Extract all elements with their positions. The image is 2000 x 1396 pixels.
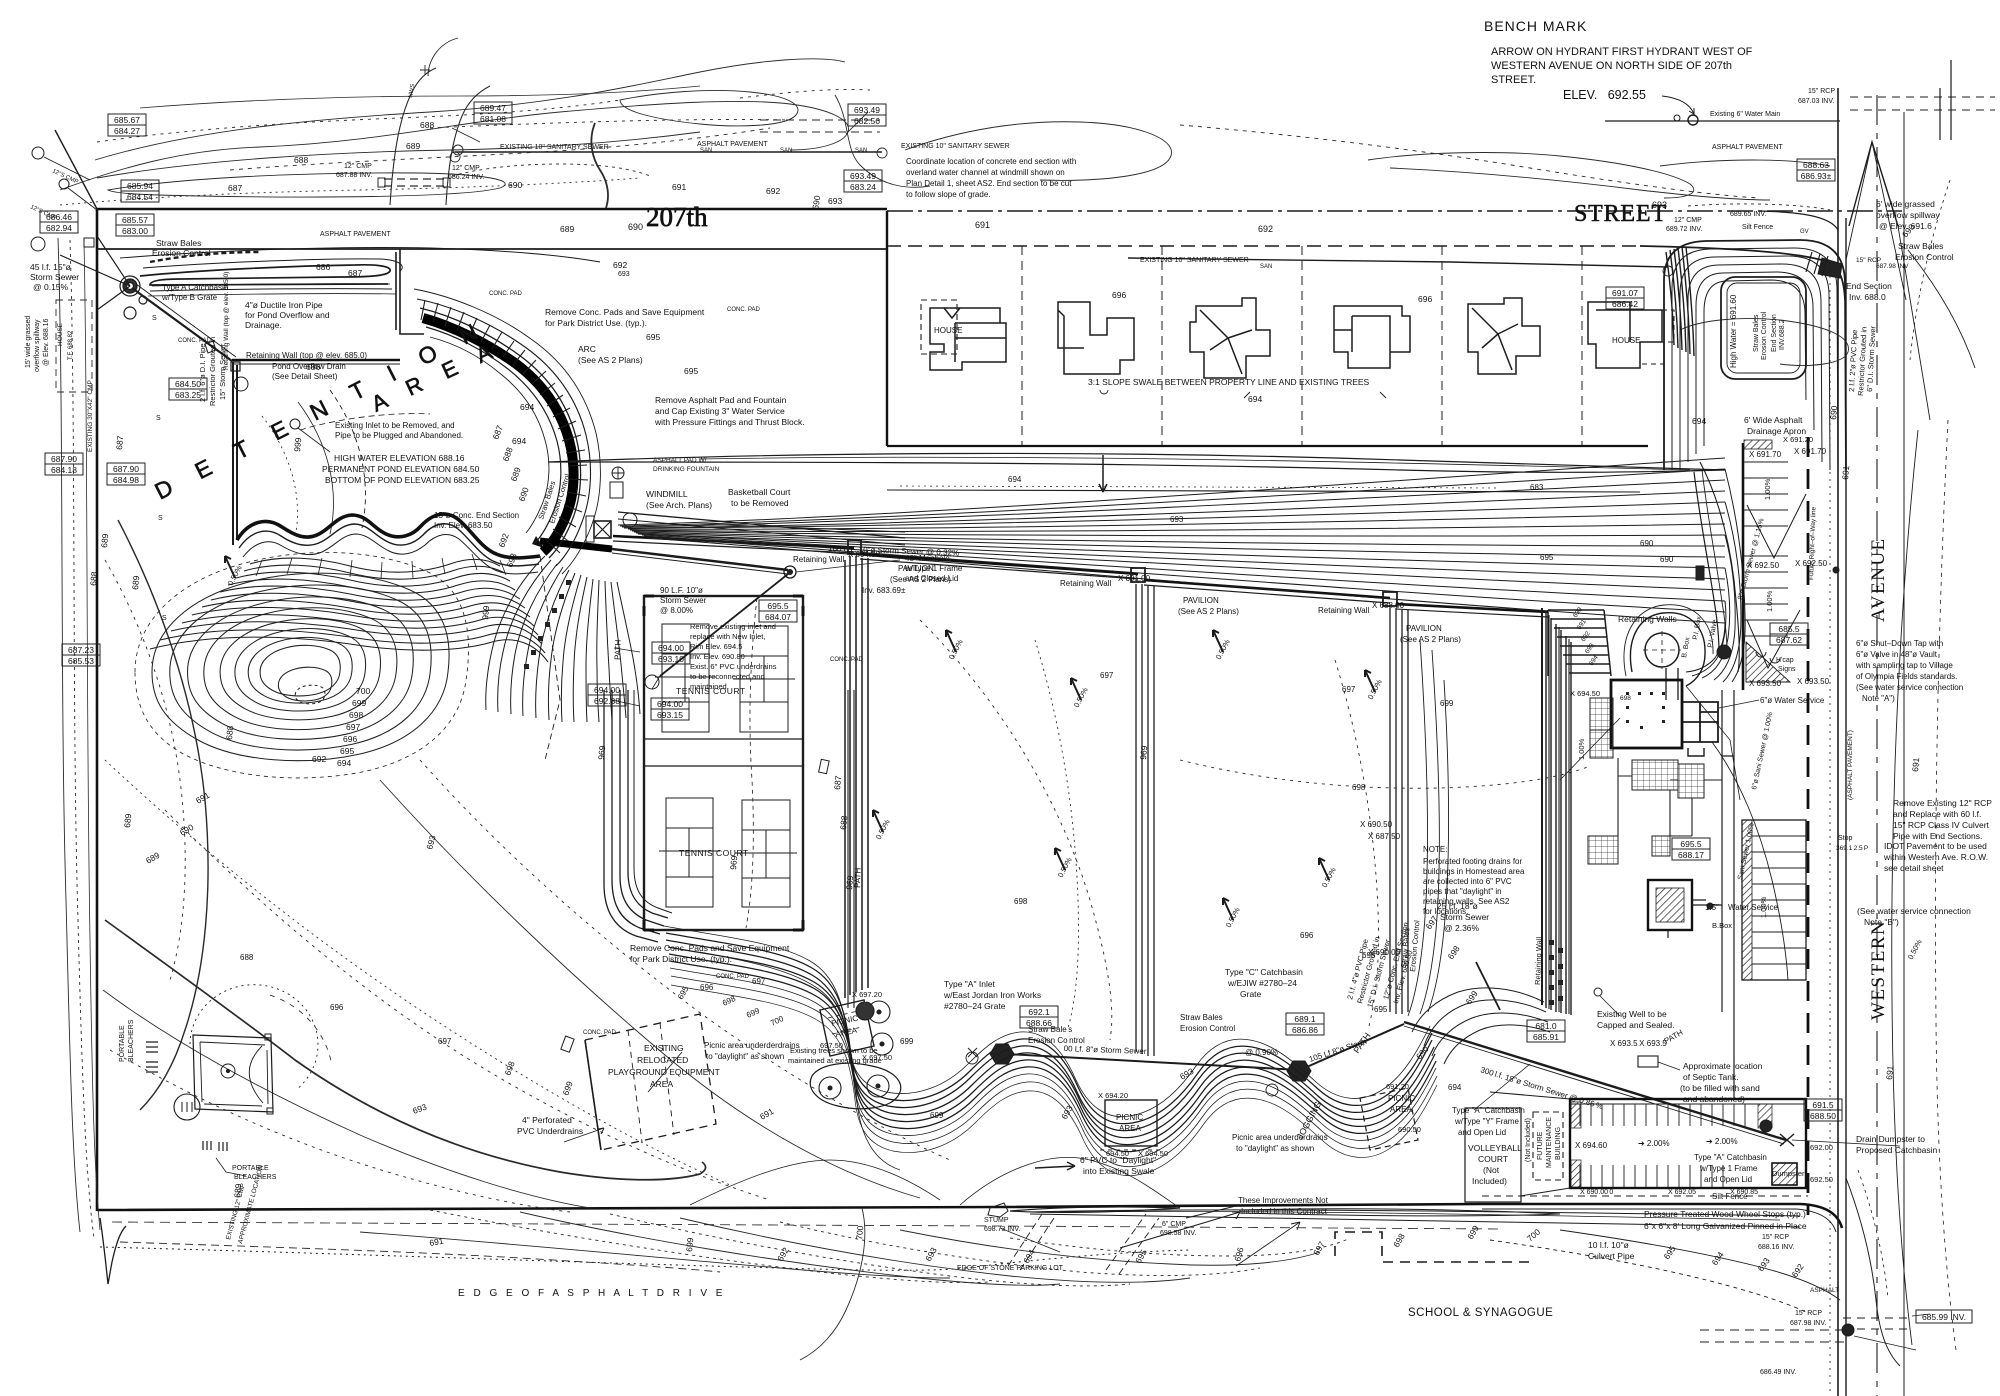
svg-text:Remove Existing 12" RCP: Remove Existing 12" RCP	[1893, 798, 1992, 808]
svg-text:PATH: PATH	[613, 639, 623, 660]
svg-text:EDGE OF STONE PARKING LOT: EDGE OF STONE PARKING LOT	[957, 1265, 1064, 1272]
svg-text:for Park District Use. (typ.).: for Park District Use. (typ.).	[545, 318, 647, 328]
svg-text:BLEACHERS: BLEACHERS	[128, 1019, 135, 1062]
svg-text:CONC. PAD: CONC. PAD	[727, 307, 761, 313]
svg-text:S: S	[156, 415, 161, 422]
svg-text:693: 693	[1584, 642, 1596, 655]
svg-text:Restrictor Grouted in: Restrictor Grouted in	[208, 337, 217, 406]
svg-text:X 688.00: X 688.00	[1372, 601, 1405, 610]
svg-text:691: 691	[1884, 1065, 1895, 1080]
svg-text:688: 688	[838, 815, 849, 830]
svg-text:ELEV. 692.55: ELEV. 692.55	[1563, 88, 1646, 102]
svg-text:694: 694	[1248, 394, 1262, 404]
svg-text:1.00%: 1.00%	[1763, 478, 1772, 500]
svg-text:to "daylight" as shown: to "daylight" as shown	[706, 1052, 784, 1061]
svg-text:w/Type 1 Frame: w/Type 1 Frame	[1699, 1164, 1758, 1173]
svg-text:Remove existing inlet and: Remove existing inlet and	[690, 622, 776, 631]
svg-text:692.00: 692.00	[1810, 1143, 1833, 1152]
svg-text:15' wide grassed: 15' wide grassed	[25, 316, 32, 368]
svg-text:NOTE:: NOTE:	[1423, 845, 1447, 854]
svg-text:695: 695	[676, 984, 691, 1001]
svg-text:697: 697	[438, 1037, 452, 1046]
svg-text:Note "A"): Note "A")	[1862, 694, 1895, 703]
svg-text:694: 694	[512, 436, 526, 446]
svg-text:700: 700	[356, 686, 370, 696]
svg-text:687.88 INV.: 687.88 INV.	[336, 172, 372, 179]
svg-text:15" RCP: 15" RCP	[1762, 1234, 1789, 1241]
svg-text:and Open Lid: and Open Lid	[1704, 1175, 1752, 1184]
svg-text:X 697.20: X 697.20	[852, 990, 882, 999]
svg-text:693: 693	[411, 1102, 428, 1116]
svg-text:RELOCATED: RELOCATED	[637, 1055, 688, 1065]
svg-text:687: 687	[114, 435, 125, 450]
svg-text:CONC. PAD: CONC. PAD	[583, 1030, 617, 1036]
svg-text:687: 687	[348, 268, 362, 278]
svg-text:X 694.20: X 694.20	[1098, 1091, 1128, 1100]
svg-text:Existing 6" Water Main: Existing 6" Water Main	[1710, 111, 1780, 118]
svg-text:(to be filled with sand: (to be filled with sand	[1680, 1083, 1760, 1093]
svg-text:687.62: 687.62	[1776, 635, 1802, 645]
svg-text:with sampling tap to Village: with sampling tap to Village	[1855, 661, 1953, 670]
svg-text:699: 699	[900, 1037, 914, 1046]
svg-text:and Cap Existing 3" Water Serv: and Cap Existing 3" Water Service	[655, 406, 785, 416]
svg-text:699: 699	[560, 1080, 574, 1097]
svg-text:6" CMP: 6" CMP	[1162, 1221, 1186, 1228]
svg-text:These Improvements Not: These Improvements Not	[1238, 1196, 1329, 1205]
svg-text:12" CMP: 12" CMP	[452, 165, 480, 172]
svg-text:2 l.f. 6"ø D.I. Pipe: 2 l.f. 6"ø D.I. Pipe	[198, 343, 207, 402]
svg-text:6"ø Shut–Down Tap with: 6"ø Shut–Down Tap with	[1856, 639, 1943, 648]
svg-text:Remove Conc. Pads and Save Equ: Remove Conc. Pads and Save Equipment	[630, 943, 790, 953]
svg-text:687.98 INV.: 687.98 INV.	[1790, 1320, 1826, 1327]
svg-text:overflow spillway: overflow spillway	[1876, 210, 1941, 220]
svg-text:697: 697	[1100, 671, 1114, 680]
svg-text:689.72 INV.: 689.72 INV.	[1666, 226, 1702, 233]
svg-text:SAN: SAN	[700, 148, 712, 154]
svg-text:Exist. 6" PVC underdrains: Exist. 6" PVC underdrains	[690, 662, 777, 671]
svg-text:696: 696	[1232, 1246, 1245, 1263]
svg-text:691.20: 691.20	[1386, 1082, 1409, 1091]
svg-text:MAINTENANCE: MAINTENANCE	[1546, 1117, 1553, 1168]
svg-text:AREA: AREA	[1390, 1105, 1412, 1114]
svg-text:for Pond Overflow and: for Pond Overflow and	[245, 310, 330, 320]
svg-text:EXISTING 10" SANITARY SEWER: EXISTING 10" SANITARY SEWER	[500, 144, 609, 151]
svg-text:X 693.50: X 693.50	[1749, 679, 1782, 688]
svg-text:691: 691	[758, 1106, 776, 1122]
svg-text:w/Type "Y" Frame: w/Type "Y" Frame	[1454, 1117, 1519, 1126]
svg-text:Pipe with End Sections.: Pipe with End Sections.	[1893, 831, 1982, 841]
svg-text:TENNIS COURT: TENNIS COURT	[676, 686, 746, 696]
svg-text:CONC. PAD: CONC. PAD	[830, 657, 864, 663]
svg-text:688: 688	[240, 953, 254, 962]
svg-text:700: 700	[769, 1014, 785, 1028]
svg-text:BOTTOM OF POND ELEVATION 683.2: BOTTOM OF POND ELEVATION 683.25	[325, 475, 480, 485]
svg-text:694.00: 694.00	[594, 685, 620, 695]
svg-text:692: 692	[1580, 630, 1592, 643]
svg-text:X 693.5 X 693.5: X 693.5 X 693.5	[1610, 1039, 1667, 1048]
svg-text:Stop: Stop	[1838, 835, 1853, 842]
svg-text:Inv. Elev. 683.50: Inv. Elev. 683.50	[434, 521, 493, 530]
svg-text:Inv. 683.69±: Inv. 683.69±	[862, 586, 906, 595]
svg-text:15" RCP Class IV Culvert: 15" RCP Class IV Culvert	[1893, 820, 1990, 830]
svg-text:1.00%: 1.00%	[1765, 590, 1774, 612]
svg-text:(See Arch. Plans): (See Arch. Plans)	[646, 500, 712, 510]
svg-text:ARROW ON HYDRANT FIRST HYDRANT: ARROW ON HYDRANT FIRST HYDRANT WEST OF	[1491, 46, 1753, 58]
svg-text:207th: 207th	[646, 202, 708, 232]
svg-text:694: 694	[1588, 654, 1600, 667]
svg-text:697: 697	[1311, 1239, 1327, 1257]
svg-text:691: 691	[975, 220, 990, 230]
svg-text:Straw Bale s: Straw Bale s	[1028, 1025, 1072, 1034]
svg-text:ASPHALT: ASPHALT	[1810, 1287, 1839, 1294]
svg-text:X 692.50: X 692.50	[1747, 561, 1780, 570]
svg-text:Water Service: Water Service	[1728, 903, 1778, 912]
svg-text:691: 691	[1910, 757, 1921, 772]
svg-text:X 691.70: X 691.70	[1749, 450, 1782, 459]
svg-text:692.50: 692.50	[1810, 1175, 1833, 1184]
svg-text:COURT: COURT	[1478, 1154, 1508, 1164]
svg-text:and abandoned): and abandoned)	[1683, 1094, 1745, 1104]
svg-text:Retaining Walls: Retaining Walls	[1618, 614, 1677, 624]
svg-text:686.49 INV.: 686.49 INV.	[1760, 1369, 1796, 1376]
svg-text:3:1 SLOPE SWALE BETWEEN PROPER: 3:1 SLOPE SWALE BETWEEN PROPERTY LINE AN…	[1088, 377, 1370, 387]
svg-text:PAVILION: PAVILION	[1406, 624, 1442, 633]
svg-text:ASPHALT PAVEMENT: ASPHALT PAVEMENT	[1712, 144, 1783, 151]
svg-text:697: 697	[346, 722, 360, 732]
svg-text:STUMP: STUMP	[984, 1217, 1009, 1224]
svg-text:690: 690	[1640, 539, 1654, 548]
svg-text:691: 691	[429, 1236, 445, 1248]
svg-text:X 691.00: X 691.00	[1118, 574, 1151, 583]
svg-text:694: 694	[1709, 1250, 1725, 1268]
svg-text:E D G E O F A S P H A L T: E D G E O F A S P H A L T D R I V E	[458, 1288, 725, 1299]
svg-text:699: 699	[1465, 1223, 1481, 1241]
svg-text:693.15: 693.15	[657, 710, 683, 720]
svg-text:689.47: 689.47	[480, 103, 506, 113]
svg-text:694: 694	[520, 402, 534, 412]
svg-text:694.00: 694.00	[658, 643, 684, 653]
svg-text:Drainage.: Drainage.	[245, 320, 282, 330]
svg-text:685.67: 685.67	[114, 115, 140, 125]
svg-text:EXISTING 30"X42" CMP: EXISTING 30"X42" CMP	[87, 380, 94, 452]
svg-text:693: 693	[424, 834, 437, 851]
svg-text:Type "C" Catchbasin: Type "C" Catchbasin	[1225, 967, 1303, 977]
svg-text:688: 688	[420, 120, 434, 130]
svg-text:693: 693	[618, 271, 630, 278]
svg-text:15" RCP: 15" RCP	[1795, 1310, 1822, 1317]
svg-text:S: S	[158, 515, 163, 522]
svg-text:688: 688	[500, 446, 514, 463]
svg-text:695: 695	[340, 746, 354, 756]
svg-text:End Section: End Section	[1846, 281, 1892, 291]
svg-text:694: 694	[1008, 475, 1022, 484]
svg-text:45 l.f. 15"ø: 45 l.f. 15"ø	[30, 262, 71, 272]
svg-text:694: 694	[337, 758, 351, 768]
svg-text:684.07: 684.07	[765, 612, 791, 622]
svg-text:(See Detail Sheet): (See Detail Sheet)	[272, 372, 338, 381]
svg-text:698: 698	[349, 710, 363, 720]
svg-text:INV.688.2: INV.688.2	[1779, 319, 1786, 350]
svg-text:699: 699	[1440, 699, 1454, 708]
svg-text:Type "A" Inlet: Type "A" Inlet	[944, 979, 996, 989]
svg-text:and Replace with 60 l.f.: and Replace with 60 l.f.	[1893, 809, 1981, 819]
svg-text:695: 695	[646, 332, 660, 342]
svg-text:Retaining Wall: Retaining Wall	[1060, 579, 1112, 588]
svg-text:1.00%: 1.00%	[1577, 738, 1586, 760]
svg-text:90 L.F. 10"ø: 90 L.F. 10"ø	[660, 586, 703, 595]
svg-text:SCHOOL & SYNAGOGUE: SCHOOL & SYNAGOGUE	[1408, 1307, 1553, 1319]
svg-text:999: 999	[292, 437, 303, 452]
svg-text:696: 696	[700, 983, 714, 992]
svg-text:HIGH WATER ELEVATION 688.16: HIGH WATER ELEVATION 688.16	[334, 453, 465, 463]
svg-text:Rim Elev. 694.5: Rim Elev. 694.5	[690, 642, 742, 651]
svg-text:to be Removed: to be Removed	[731, 498, 789, 508]
svg-text:698: 698	[1445, 944, 1461, 962]
svg-text:BUILDING: BUILDING	[1555, 1127, 1562, 1160]
svg-text:X 691.70: X 691.70	[1794, 447, 1827, 456]
svg-text:687.23: 687.23	[68, 645, 94, 655]
svg-text:696: 696	[330, 1003, 344, 1012]
svg-text:685.91: 685.91	[1533, 1032, 1559, 1042]
svg-text:Erosion Control: Erosion Control	[152, 248, 211, 258]
svg-text:691.07: 691.07	[1612, 288, 1638, 298]
svg-text:691: 691	[1840, 465, 1851, 480]
svg-text:X 690.00 0: X 690.00 0	[1580, 1189, 1613, 1196]
svg-text:ARC: ARC	[578, 344, 596, 354]
svg-text:EXISTING: EXISTING	[644, 1043, 684, 1053]
svg-text:SAN: SAN	[855, 148, 867, 154]
svg-text:within Western Ave. R.O.W.: within Western Ave. R.O.W.	[1883, 852, 1988, 862]
svg-text:➔ 2.00%: ➔ 2.00%	[1706, 1137, 1738, 1146]
svg-text:@ 2.36%: @ 2.36%	[1444, 923, 1480, 933]
svg-text:PAVILION: PAVILION	[1183, 596, 1219, 605]
svg-text:and Closed Lid: and Closed Lid	[905, 574, 958, 583]
svg-text:P.I. Valve: P.I. Valve	[1707, 619, 1719, 648]
svg-text:B.Box: B.Box	[1712, 921, 1732, 930]
svg-text:697: 697	[752, 977, 766, 986]
svg-text:HOUSE: HOUSE	[57, 322, 64, 346]
svg-text:687: 687	[490, 424, 504, 441]
svg-text:692.88: 692.88	[594, 696, 620, 706]
svg-text:AREA: AREA	[650, 1079, 673, 1089]
svg-text:685.53: 685.53	[68, 656, 94, 666]
svg-text:690: 690	[516, 486, 530, 503]
svg-text:691: 691	[672, 182, 686, 192]
svg-text:ASPHALT PAVEMENT: ASPHALT PAVEMENT	[697, 141, 768, 148]
svg-text:969: 969	[1138, 745, 1149, 760]
svg-text:695.5: 695.5	[767, 601, 789, 611]
svg-text:Straw Bales: Straw Bales	[1180, 1013, 1223, 1022]
svg-text:Erosion Control: Erosion Control	[1180, 1024, 1235, 1033]
svg-text:Existing trees shown to be: Existing trees shown to be	[790, 1046, 878, 1055]
svg-text:683.24: 683.24	[850, 182, 876, 192]
svg-text:w/East Jordan Iron Works: w/East Jordan Iron Works	[943, 990, 1041, 1000]
svg-text:T.F. 688.82: T.F. 688.82	[68, 330, 74, 360]
svg-text:689: 689	[560, 224, 574, 234]
svg-text:698: 698	[1014, 897, 1028, 906]
svg-text:700: 700	[1525, 1227, 1543, 1244]
svg-text:698: 698	[1391, 1231, 1407, 1249]
svg-text:686.93±: 686.93±	[1801, 171, 1832, 181]
svg-text:4" Perforated: 4" Perforated	[522, 1115, 572, 1125]
svg-text:PICNIC: PICNIC	[1116, 1113, 1143, 1122]
svg-text:690: 690	[628, 222, 643, 232]
svg-text:687.98 INV: 687.98 INV	[1876, 263, 1909, 270]
svg-text:369.1 2.5 P: 369.1 2.5 P	[1836, 845, 1868, 852]
svg-text:687: 687	[832, 775, 843, 790]
svg-text:6"ø Water Service: 6"ø Water Service	[1760, 696, 1825, 705]
svg-text:Coordinate location of concret: Coordinate location of concrete end sect…	[906, 157, 1076, 166]
svg-text:Existing Well to be: Existing Well to be	[1597, 1009, 1667, 1019]
svg-text:(See water service connection: (See water service connection	[1857, 906, 1971, 916]
svg-text:@ 8.00%: @ 8.00%	[660, 606, 693, 615]
svg-text:688.63: 688.63	[1803, 160, 1829, 170]
svg-text:CONC. PAD: CONC. PAD	[716, 974, 750, 980]
svg-text:Remove Conc. Pads and Save Equ: Remove Conc. Pads and Save Equipment	[545, 307, 705, 317]
svg-text:Plan Detail 1, sheet AS2. End: Plan Detail 1, sheet AS2. End section to…	[906, 179, 1072, 188]
svg-text:Picnic area underderdrains: Picnic area underderdrains	[704, 1041, 800, 1050]
svg-text:695.5: 695.5	[1680, 839, 1702, 849]
svg-text:699: 699	[352, 698, 366, 708]
svg-text:overland water channel at wind: overland water channel at windmill shown…	[906, 168, 1065, 177]
svg-text:685.57: 685.57	[122, 215, 148, 225]
svg-text:Retaining Wall (top @ elev. 68: Retaining Wall (top @ elev. 685.0)	[223, 272, 230, 370]
svg-text:689: 689	[406, 141, 420, 151]
svg-text:EXISTING 10" SANITARY SEWER: EXISTING 10" SANITARY SEWER	[901, 143, 1010, 150]
svg-text:Erosion Control: Erosion Control	[1761, 311, 1768, 360]
svg-text:1.00%: 1.00%	[1759, 896, 1768, 918]
svg-text:w/EJIW #2780–24: w/EJIW #2780–24	[1227, 978, 1297, 988]
svg-text:X 692.50: X 692.50	[1795, 559, 1828, 568]
svg-text:Future Right–of–Way line: Future Right–of–Way line	[1808, 506, 1818, 580]
svg-text:690: 690	[508, 180, 522, 190]
svg-text:BENCH MARK: BENCH MARK	[1484, 18, 1587, 34]
svg-text:698.73 INV.: 698.73 INV.	[984, 1226, 1020, 1233]
svg-text:Capped and Sealed.: Capped and Sealed.	[1597, 1020, 1675, 1030]
svg-text:684.98: 684.98	[113, 475, 139, 485]
svg-text:688: 688	[88, 571, 99, 586]
svg-text:699: 699	[745, 1006, 761, 1020]
svg-text:969: 969	[728, 855, 739, 870]
svg-text:Straw Bales: Straw Bales	[156, 238, 201, 248]
svg-text:overflow spillway: overflow spillway	[34, 319, 41, 372]
svg-text:693.49: 693.49	[850, 171, 876, 181]
svg-text:696: 696	[1362, 951, 1376, 960]
svg-text:690.50: 690.50	[1398, 1125, 1421, 1134]
svg-text:6"ø Sani Sewer @ 1.00%: 6"ø Sani Sewer @ 1.00%	[1751, 711, 1774, 790]
svg-text:6' Wide Asphalt: 6' Wide Asphalt	[1744, 415, 1803, 425]
svg-text:Note "B"): Note "B")	[1864, 917, 1899, 927]
svg-text:pipes that "daylight" in: pipes that "daylight" in	[1423, 887, 1502, 896]
svg-text:X 693.50: X 693.50	[1797, 677, 1830, 686]
svg-text:689: 689	[130, 575, 141, 590]
svg-text:689: 689	[508, 466, 522, 483]
svg-text:683.00: 683.00	[122, 226, 148, 236]
svg-text:687.90: 687.90	[51, 454, 77, 464]
svg-text:of Olympia Fields standards.: of Olympia Fields standards.	[1856, 672, 1957, 681]
svg-text:696: 696	[343, 734, 357, 744]
svg-text:Included in this Contract: Included in this Contract	[1241, 1207, 1328, 1216]
svg-text:687.90: 687.90	[113, 464, 139, 474]
svg-text:replace with New Inlet,: replace with New Inlet,	[690, 632, 765, 641]
svg-text:Inv. 688.0: Inv. 688.0	[1849, 292, 1886, 302]
svg-text:689: 689	[99, 533, 110, 548]
svg-text:IDOT Pavement to be used: IDOT Pavement to be used	[1884, 841, 1987, 851]
svg-text:of Septic Tank.: of Septic Tank.	[1683, 1072, 1739, 1082]
svg-text:700: 700	[854, 1225, 865, 1240]
svg-text:PICNIC: PICNIC	[1388, 1094, 1415, 1103]
svg-text:696: 696	[1112, 290, 1126, 300]
svg-text:Basketball Court: Basketball Court	[728, 487, 791, 497]
svg-text:Culvert Pipe: Culvert Pipe	[1588, 1251, 1635, 1261]
svg-text:HOUSE: HOUSE	[934, 326, 962, 335]
svg-text:X 690.50: X 690.50	[1360, 820, 1393, 829]
svg-text:@ Elev. 688.16: @ Elev. 688.16	[43, 318, 50, 366]
svg-text:H'cap: H'cap	[1776, 657, 1794, 664]
svg-text:buildings in Homestead area: buildings in Homestead area	[1423, 867, 1525, 876]
svg-text:6"x 6"x 8' Long Galvanized Pin: 6"x 6"x 8' Long Galvanized Pinned in Pla…	[1644, 1221, 1807, 1231]
svg-text:688.16 INV.: 688.16 INV.	[1758, 1244, 1794, 1251]
svg-text:692: 692	[496, 532, 510, 549]
svg-text:Silt Fence: Silt Fence	[1712, 1192, 1748, 1201]
svg-text:(Not: (Not	[1483, 1165, 1500, 1175]
svg-text:999: 999	[480, 605, 491, 620]
svg-text:15" RCP: 15" RCP	[1808, 88, 1835, 95]
svg-text:GV: GV	[1800, 229, 1809, 235]
svg-text:(See AS 2 Plans): (See AS 2 Plans)	[1178, 607, 1239, 616]
svg-text:682.94: 682.94	[46, 223, 72, 233]
svg-text:Retaining Wall: Retaining Wall	[1318, 606, 1370, 615]
svg-text:Picnic area underderdrains: Picnic area underderdrains	[1232, 1133, 1328, 1142]
svg-text:686: 686	[306, 362, 320, 372]
svg-text:4"ø Ductile Iron Pipe: 4"ø Ductile Iron Pipe	[245, 300, 323, 310]
svg-text:B. Box: B. Box	[1681, 636, 1692, 658]
svg-text:690: 690	[178, 822, 196, 838]
svg-text:Straw Bales: Straw Bales	[1753, 314, 1760, 352]
svg-text:(See AS 2 Plans): (See AS 2 Plans)	[578, 355, 643, 365]
svg-text:00 Lf. 8"ø Storm Sewer: 00 Lf. 8"ø Storm Sewer	[1062, 1044, 1147, 1056]
svg-text:697: 697	[1342, 685, 1356, 694]
svg-text:X 694.50: X 694.50	[1138, 1149, 1168, 1158]
svg-text:SAN: SAN	[1260, 264, 1272, 270]
svg-text:into Existing Swale: into Existing Swale	[1083, 1166, 1155, 1176]
svg-text:689.1: 689.1	[1294, 1014, 1316, 1024]
svg-text:Retaining Wall (top @ elev. 68: Retaining Wall (top @ elev. 685.0)	[246, 351, 367, 360]
svg-text:693: 693	[923, 1245, 939, 1263]
svg-text:Type A Catchbasin: Type A Catchbasin	[162, 283, 228, 292]
svg-text:PVC Underdrains: PVC Underdrains	[517, 1126, 583, 1136]
svg-text:682.56: 682.56	[854, 116, 880, 126]
svg-text:694: 694	[1692, 416, 1706, 426]
svg-text:690: 690	[1828, 405, 1839, 420]
svg-text:Approximate location: Approximate location	[1683, 1061, 1763, 1071]
svg-text:(See AS 2 Plans): (See AS 2 Plans)	[1400, 635, 1461, 644]
svg-text:692: 692	[613, 260, 627, 270]
svg-text:689: 689	[122, 813, 133, 828]
svg-text:696: 696	[1418, 294, 1432, 304]
svg-text:Inv. Elev. 690.80: Inv. Elev. 690.80	[690, 652, 745, 661]
svg-text:WINDMILL: WINDMILL	[646, 489, 688, 499]
svg-text:STREET.: STREET.	[1491, 74, 1536, 86]
svg-text:DRINKING FOUNTAIN: DRINKING FOUNTAIN	[653, 466, 720, 473]
svg-text:10 l.f. 10"ø: 10 l.f. 10"ø	[1588, 1240, 1629, 1250]
svg-text:VOLLEYBALL: VOLLEYBALL	[1468, 1143, 1522, 1153]
svg-text:12" CMP: 12" CMP	[344, 163, 372, 170]
svg-text:PERMANENT POND ELEVATION 684.5: PERMANENT POND ELEVATION 684.50	[322, 464, 480, 474]
svg-text:694.50: 694.50	[1106, 1149, 1129, 1158]
svg-text:Retaining Wall: Retaining Wall	[793, 555, 845, 564]
svg-text:are collected into 6" PVC: are collected into 6" PVC	[1423, 877, 1512, 886]
